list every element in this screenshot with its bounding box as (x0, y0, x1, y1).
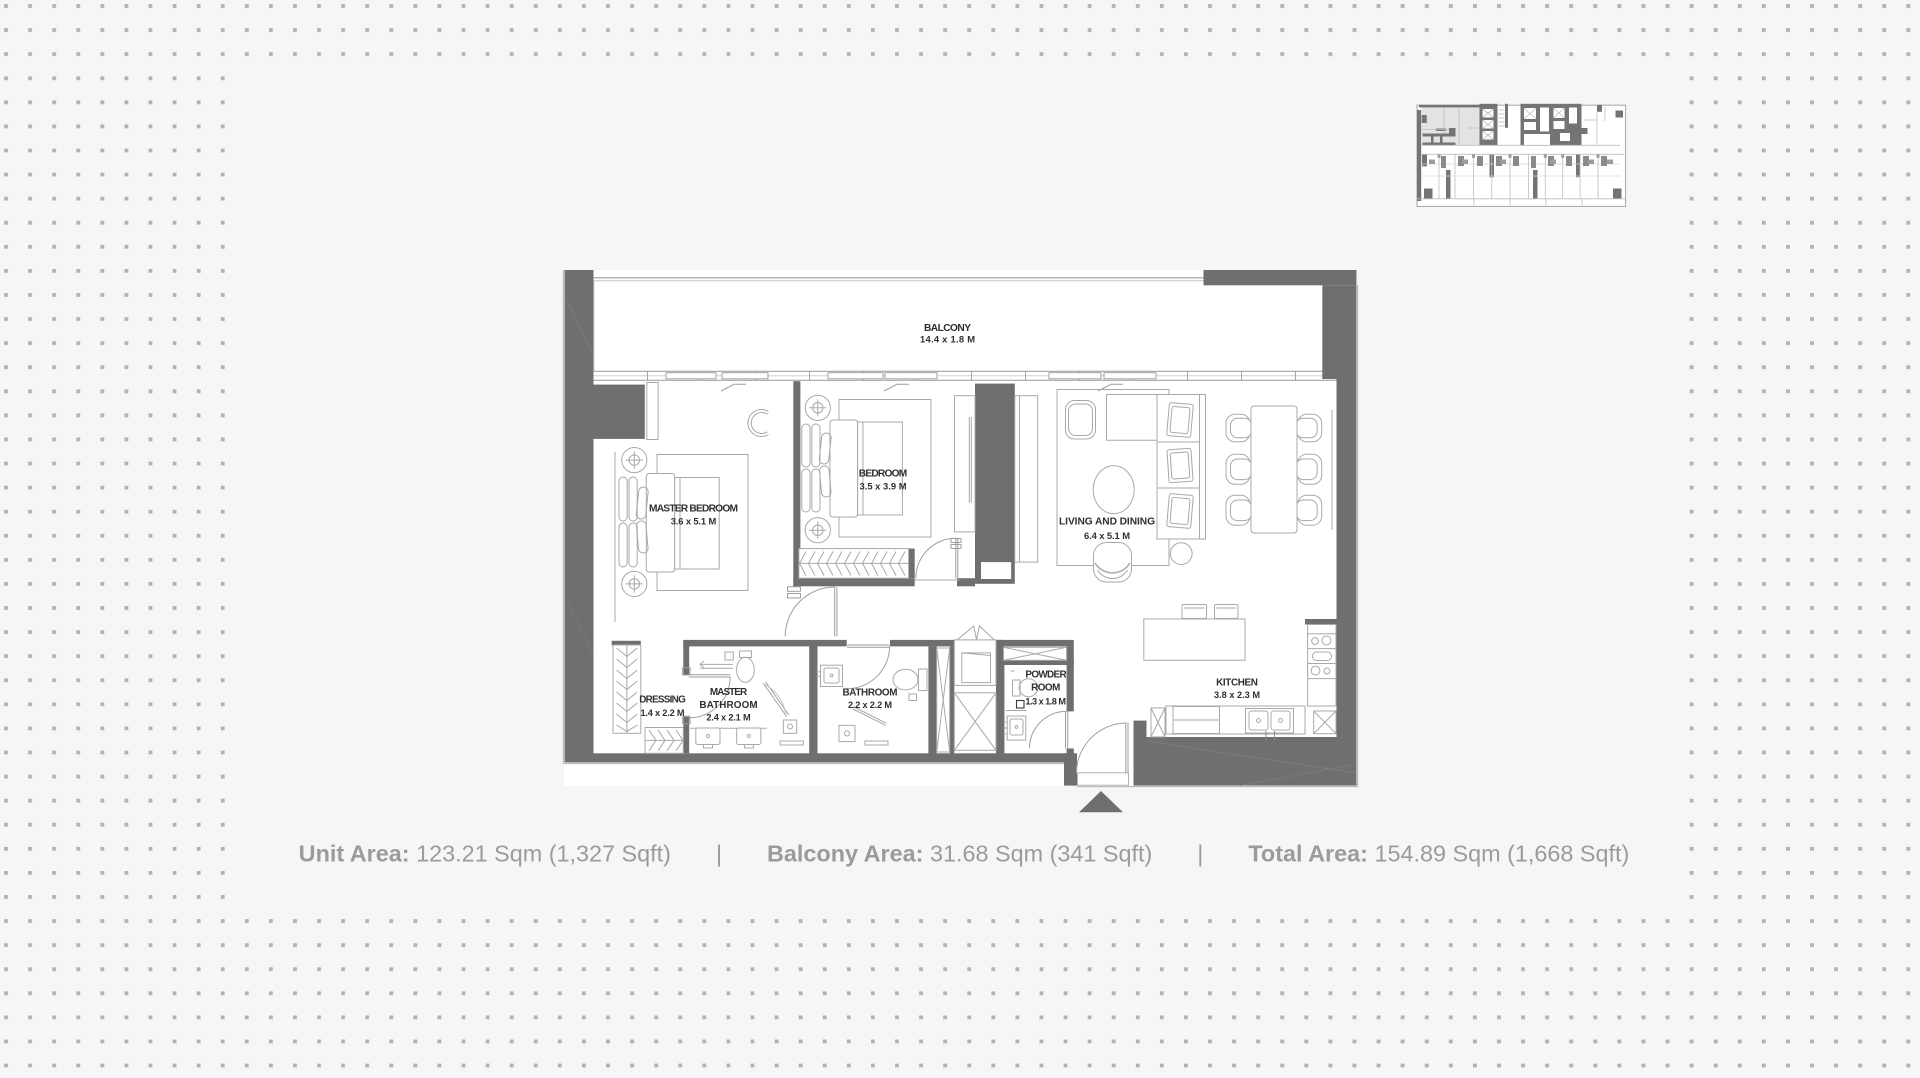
svg-text:ROOM: ROOM (1031, 683, 1060, 694)
svg-text:2.4 x 2.1 M: 2.4 x 2.1 M (706, 712, 751, 722)
svg-text:BATHROOM: BATHROOM (699, 700, 757, 711)
svg-text:6.4 x 5.1 M: 6.4 x 5.1 M (1084, 530, 1130, 541)
svg-text:POWDER: POWDER (1025, 670, 1066, 681)
svg-text:LIVING AND DINING: LIVING AND DINING (1059, 517, 1155, 528)
svg-text:3.5 x 3.9 M: 3.5 x 3.9 M (860, 481, 907, 492)
svg-text:14.4 x 1.8 M: 14.4 x 1.8 M (920, 334, 975, 345)
svg-text:1.4 x 2.2 M: 1.4 x 2.2 M (641, 708, 685, 718)
svg-text:3.8 x 2.3 M: 3.8 x 2.3 M (1214, 690, 1260, 700)
svg-text:BEDROOM: BEDROOM (859, 469, 908, 480)
svg-text:2.2 x 2.2 M: 2.2 x 2.2 M (848, 700, 892, 710)
svg-text:MASTER BEDROOM: MASTER BEDROOM (649, 503, 738, 514)
svg-text:Unit Area: 123.21 Sqm (1,327 S: Unit Area: 123.21 Sqm (1,327 Sqft)|Balco… (299, 841, 1630, 867)
svg-text:BALCONY: BALCONY (924, 323, 971, 334)
svg-text:1.3 x 1.8 M: 1.3 x 1.8 M (1025, 697, 1066, 707)
svg-text:MASTER: MASTER (710, 687, 747, 698)
svg-text:DRESSING: DRESSING (639, 695, 686, 706)
svg-text:BATHROOM: BATHROOM (843, 687, 898, 698)
svg-text:3.6 x 5.1 M: 3.6 x 5.1 M (671, 515, 717, 526)
svg-text:KITCHEN: KITCHEN (1216, 678, 1258, 689)
